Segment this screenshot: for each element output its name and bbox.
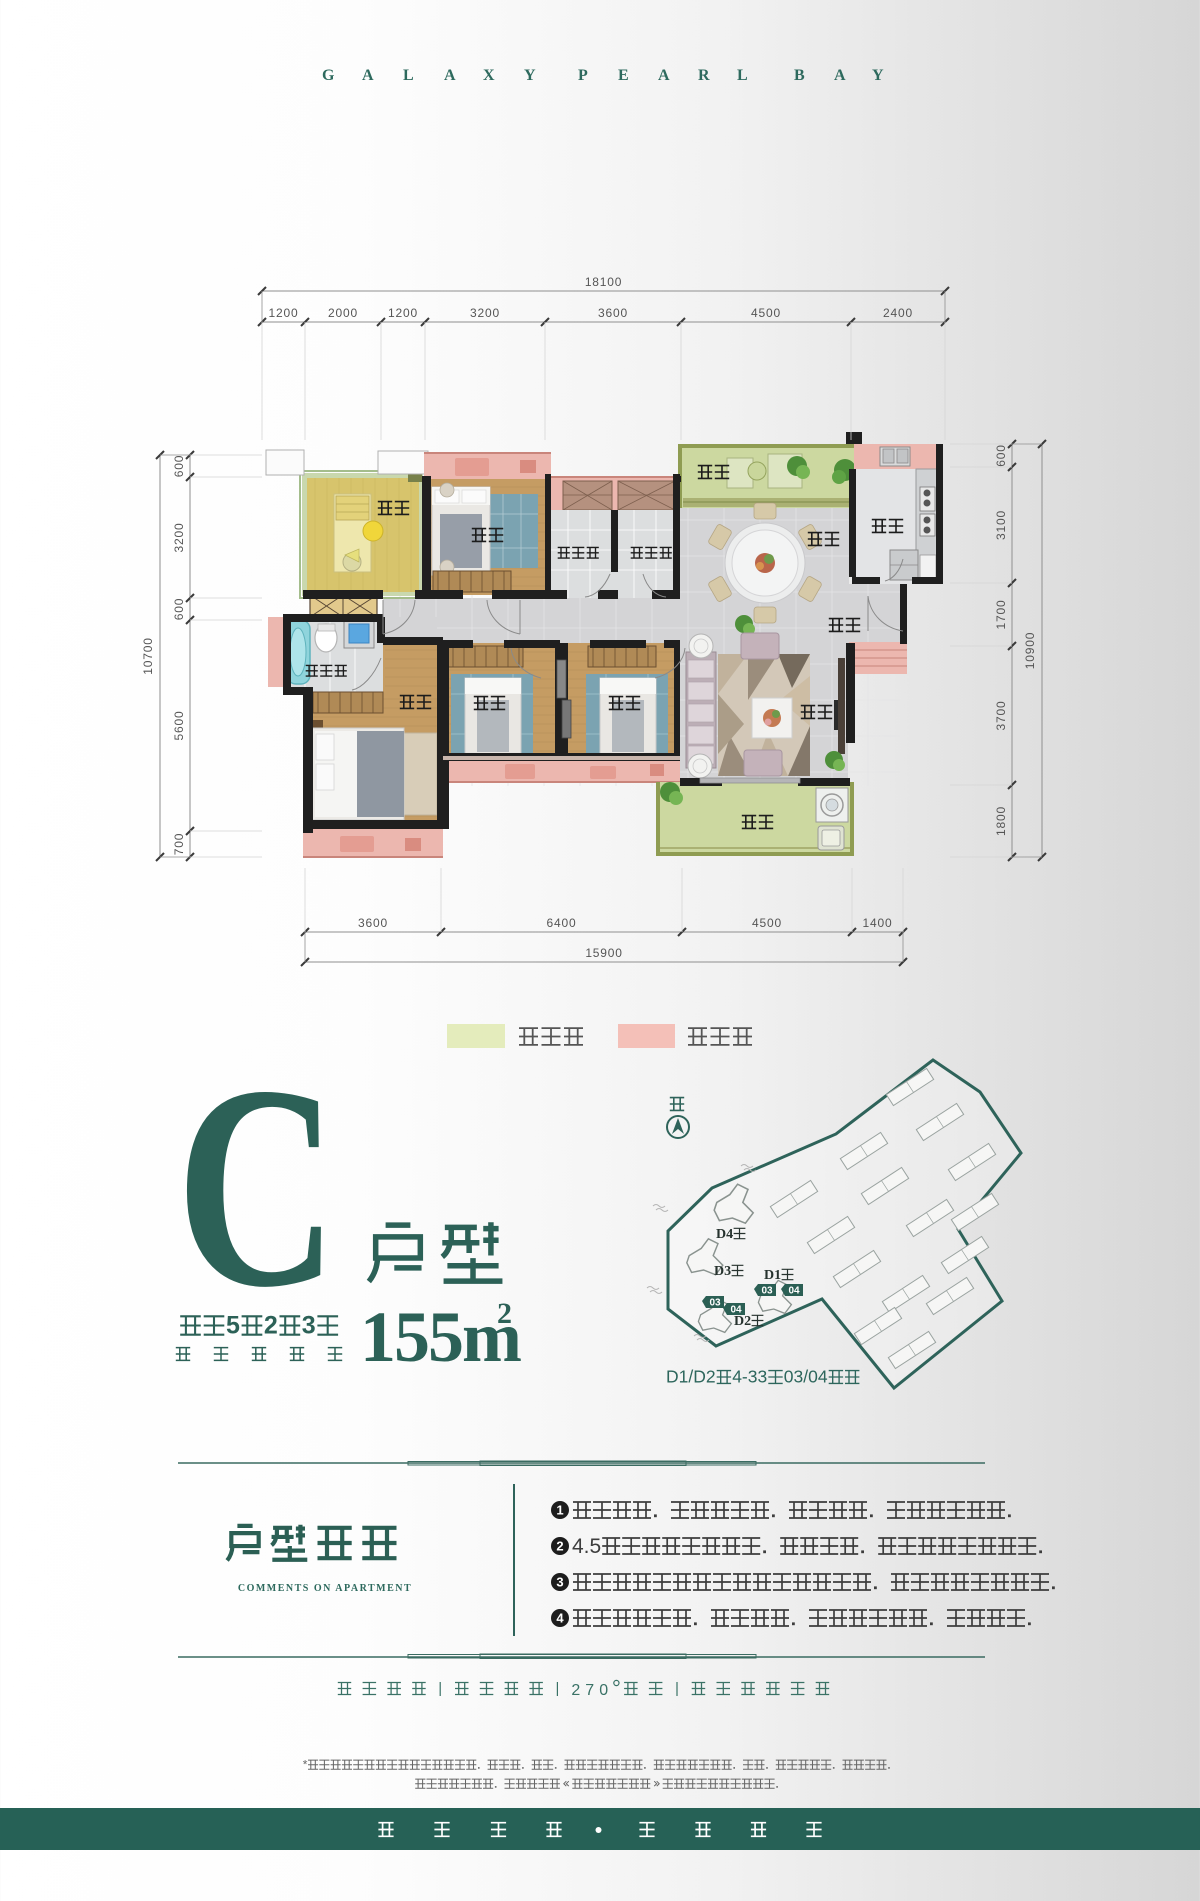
svg-text:03: 03 [709, 1298, 721, 1309]
svg-text:10900: 10900 [1023, 632, 1037, 669]
svg-text:L: L [403, 67, 414, 84]
svg-text:B: B [794, 67, 805, 84]
svg-text:3200: 3200 [172, 523, 186, 553]
svg-text:A: A [444, 67, 456, 84]
svg-text:600: 600 [994, 444, 1008, 466]
svg-text:2400: 2400 [883, 306, 913, 320]
svg-text:700: 700 [172, 833, 186, 855]
svg-text:600: 600 [172, 598, 186, 620]
svg-text:3100: 3100 [994, 510, 1008, 540]
svg-text:A: A [658, 67, 670, 84]
svg-text:*: * [303, 1758, 308, 1772]
svg-text:L: L [737, 67, 748, 84]
svg-text:3700: 3700 [994, 701, 1008, 731]
svg-text:4.5: 4.5 [572, 1535, 601, 1558]
svg-text:4: 4 [556, 1611, 564, 1626]
svg-text:D2: D2 [734, 1314, 751, 1329]
svg-text:04: 04 [788, 1286, 800, 1297]
svg-text:5: 5 [226, 1312, 240, 1340]
svg-text:270: 270 [571, 1682, 613, 1699]
svg-text:1400: 1400 [863, 916, 893, 930]
svg-text:3: 3 [302, 1312, 316, 1340]
svg-text:1800: 1800 [994, 806, 1008, 836]
svg-text:P: P [578, 67, 588, 84]
svg-text:4500: 4500 [751, 306, 781, 320]
svg-text:1700: 1700 [994, 600, 1008, 630]
svg-text:G: G [322, 67, 335, 84]
svg-text:R: R [698, 67, 710, 84]
svg-text:Y: Y [872, 67, 884, 84]
svg-text:D4: D4 [716, 1227, 733, 1242]
svg-text:C: C [176, 1026, 338, 1347]
svg-text:5600: 5600 [172, 711, 186, 741]
svg-text:D3: D3 [714, 1264, 731, 1279]
svg-text:10700: 10700 [141, 637, 155, 674]
svg-text:15900: 15900 [585, 946, 622, 960]
svg-text:1200: 1200 [388, 306, 418, 320]
svg-text:2: 2 [556, 1539, 563, 1554]
svg-text:Y: Y [524, 67, 536, 84]
svg-text:3: 3 [556, 1575, 563, 1590]
svg-text:4500: 4500 [752, 916, 782, 930]
svg-text:D1/D2: D1/D2 [666, 1367, 716, 1387]
svg-text:COMMENTS ON APARTMENT: COMMENTS ON APARTMENT [238, 1583, 412, 1594]
svg-text:A: A [834, 67, 846, 84]
svg-text:2: 2 [264, 1312, 278, 1340]
svg-text:03/04: 03/04 [784, 1367, 828, 1387]
svg-text:3600: 3600 [598, 306, 628, 320]
svg-text:E: E [618, 67, 629, 84]
svg-text:X: X [483, 67, 495, 84]
svg-text:1: 1 [556, 1503, 563, 1518]
svg-text:1200: 1200 [269, 306, 299, 320]
svg-text:4-33: 4-33 [732, 1367, 767, 1387]
svg-text:600: 600 [172, 455, 186, 477]
svg-text:D1: D1 [764, 1268, 781, 1283]
svg-text:6400: 6400 [547, 916, 577, 930]
svg-text:18100: 18100 [585, 275, 622, 289]
svg-text:2: 2 [497, 1297, 512, 1330]
svg-text:03: 03 [761, 1286, 773, 1297]
svg-text:2000: 2000 [328, 306, 358, 320]
svg-text:3600: 3600 [358, 916, 388, 930]
svg-text:A: A [362, 67, 374, 84]
svg-text:3200: 3200 [470, 306, 500, 320]
